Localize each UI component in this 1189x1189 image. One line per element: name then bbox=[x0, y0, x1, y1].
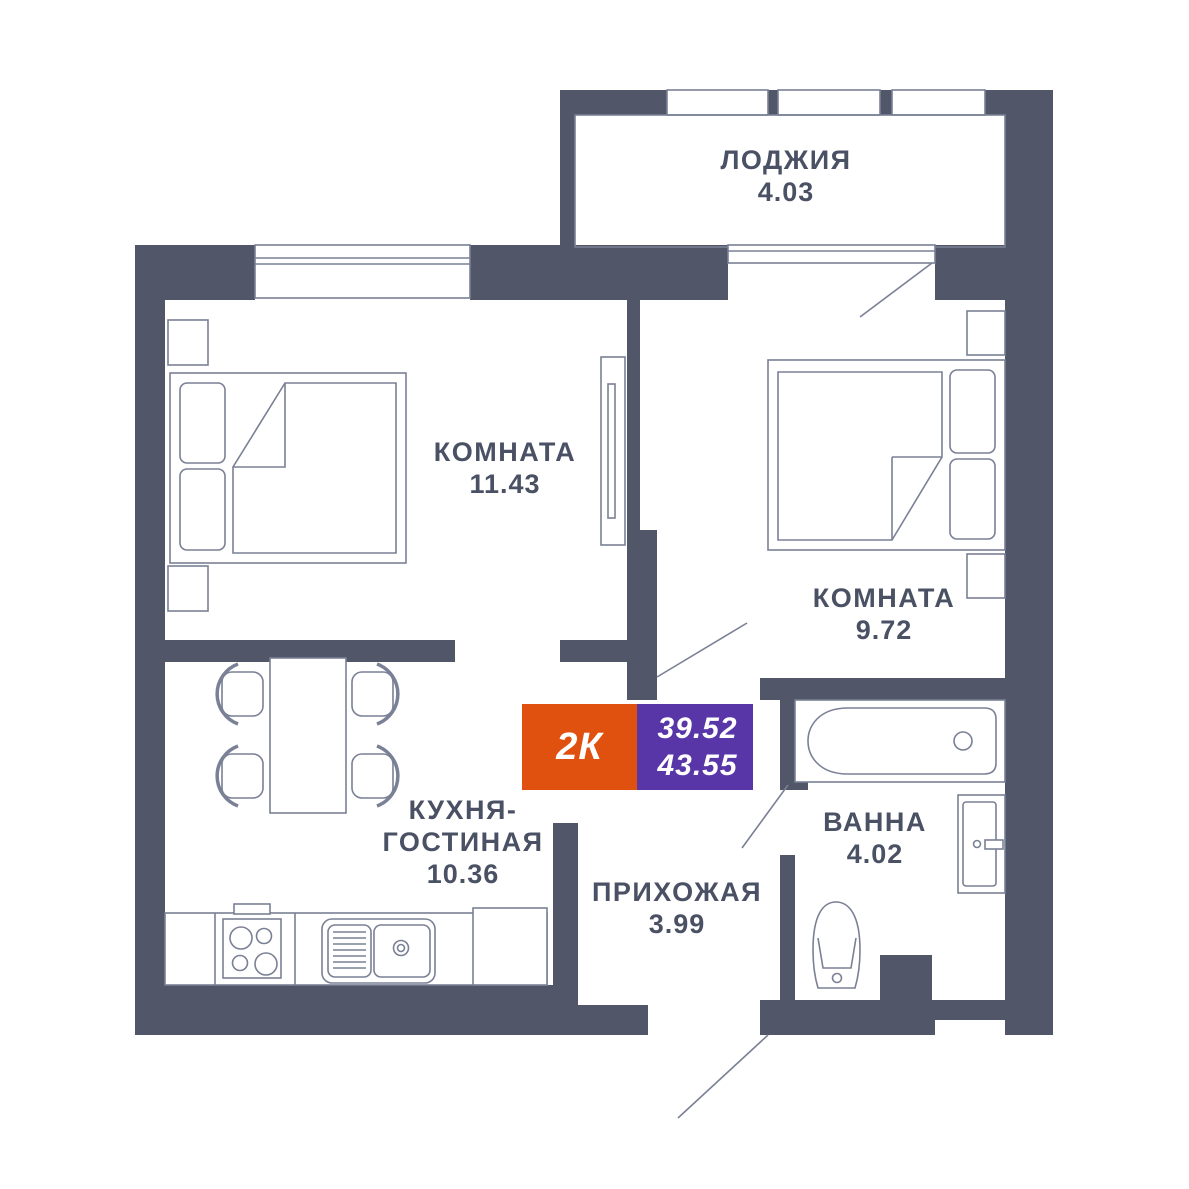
room-name: КУХНЯ-ГОСТИНАЯ bbox=[347, 794, 579, 858]
nightstand-icon bbox=[168, 320, 208, 365]
bathtub-icon bbox=[795, 700, 1005, 782]
room-area: 9.72 bbox=[754, 614, 1014, 646]
room-name: КОМНАТА bbox=[375, 436, 635, 468]
chair-icon bbox=[217, 664, 263, 724]
toilet-icon bbox=[813, 902, 860, 988]
room-label-bedroom-1: КОМНАТА 11.43 bbox=[375, 436, 635, 500]
room-area: 11.43 bbox=[375, 468, 635, 500]
chair-icon bbox=[352, 664, 398, 724]
chair-icon bbox=[217, 746, 263, 806]
nightstand-icon bbox=[168, 566, 208, 611]
apartment-areas-badge: 39.52 43.55 bbox=[637, 704, 753, 790]
double-bed-icon bbox=[170, 373, 406, 563]
room-area: 4.03 bbox=[656, 176, 916, 208]
living-area-value: 39.52 bbox=[657, 710, 737, 747]
room-name: ВАННА bbox=[775, 806, 975, 838]
room-label-bathroom: ВАННА 4.02 bbox=[775, 806, 975, 870]
room-label-loggia: ЛОДЖИЯ 4.03 bbox=[656, 144, 916, 208]
room-name: КОМНАТА bbox=[754, 582, 1014, 614]
room-label-bedroom-2: КОМНАТА 9.72 bbox=[754, 582, 1014, 646]
loggia-window bbox=[778, 90, 880, 115]
room-label-kitchen-living: КУХНЯ-ГОСТИНАЯ 10.36 bbox=[347, 794, 579, 890]
balcony-door-swing bbox=[860, 263, 932, 317]
apartment-type-badge: 2К bbox=[522, 704, 637, 790]
total-area-value: 43.55 bbox=[657, 747, 737, 784]
double-bed-icon bbox=[768, 360, 1005, 550]
fridge-icon bbox=[473, 908, 547, 985]
floor-plan: ЛОДЖИЯ 4.03 КОМНАТА 11.43 КОМНАТА 9.72 К… bbox=[0, 0, 1189, 1189]
nightstand-icon bbox=[967, 311, 1005, 355]
loggia-window bbox=[667, 90, 768, 115]
loggia-window bbox=[892, 90, 985, 115]
room-area: 10.36 bbox=[347, 858, 579, 890]
dining-table-icon bbox=[270, 658, 346, 813]
kitchen-sink-icon bbox=[322, 919, 435, 983]
bedroom-window bbox=[255, 245, 470, 298]
room-name: ПРИХОЖАЯ bbox=[557, 876, 797, 908]
room-area: 3.99 bbox=[557, 908, 797, 940]
balcony-window bbox=[728, 245, 935, 263]
room-label-hallway: ПРИХОЖАЯ 3.99 bbox=[557, 876, 797, 940]
room-name: ЛОДЖИЯ bbox=[656, 144, 916, 176]
entrance-door-swing bbox=[678, 1035, 768, 1118]
room-area: 4.02 bbox=[775, 838, 975, 870]
apartment-badge: 2К 39.52 43.55 bbox=[522, 704, 753, 790]
bedroom-door-swing bbox=[657, 623, 747, 677]
